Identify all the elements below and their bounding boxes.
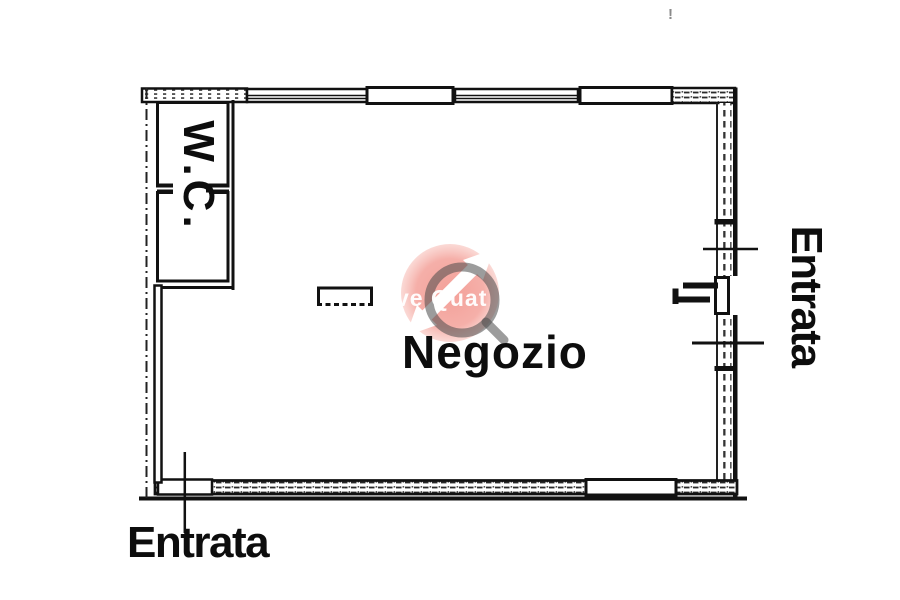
entrance-right-label: Entrata <box>784 225 828 366</box>
top-wall-pier-b <box>367 88 453 104</box>
right-door-leaf-lower-bar <box>674 297 710 303</box>
counter-outline <box>319 288 372 304</box>
right-wall-joint-lower <box>715 366 738 371</box>
right-door-leaf-upper-bar <box>683 283 718 289</box>
top-wall-right-segment <box>672 88 735 103</box>
right-wall-joint-upper <box>715 219 738 225</box>
wc-divider-stub <box>157 184 173 187</box>
wc-label: W.C. <box>176 120 220 231</box>
scan-artifact-mark: ! <box>668 6 673 23</box>
wc-outer-bottom-wall <box>157 286 234 289</box>
wc-outer-right-wall <box>232 100 235 290</box>
top-wall-pier-c <box>580 88 672 104</box>
room-label: Negozio <box>402 329 588 375</box>
floorplan-image: ve Quat <box>0 0 900 600</box>
entrance-bottom-label: Entrata <box>127 521 268 565</box>
watermark-text: ve Quat <box>396 285 487 311</box>
counter-symbol <box>317 288 373 305</box>
bottom-window <box>586 480 676 496</box>
wc-divider-stub <box>157 190 173 193</box>
bottom-baseline <box>139 497 747 501</box>
left-wall-lower <box>155 286 162 483</box>
right-door-leaf-end-cap <box>673 289 679 305</box>
top-wall-left-segment <box>142 89 247 103</box>
floorplan-drawing: ve Quat <box>0 0 900 600</box>
